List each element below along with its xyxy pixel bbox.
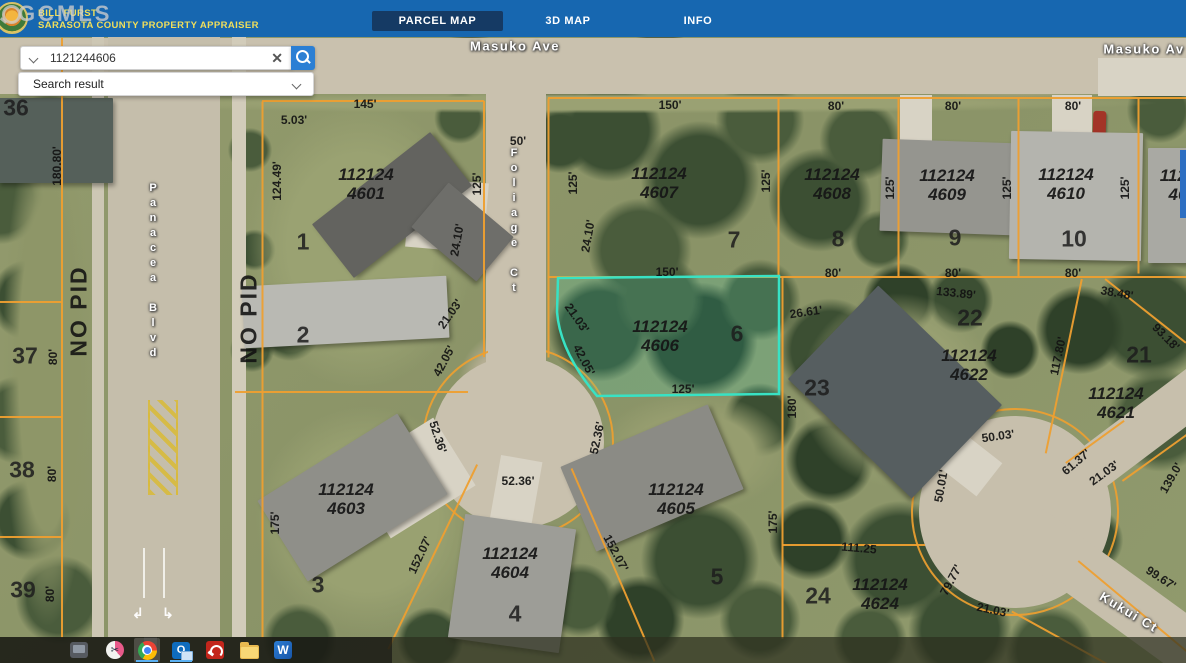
lot-number: 6 (731, 321, 744, 348)
parcel-id-label-highlighted: 1121244606 (632, 317, 687, 355)
parcel-boundary-line (547, 98, 549, 357)
map-edge-artifact (1180, 150, 1186, 218)
parcel-id-label: 1121244604 (482, 544, 537, 582)
search-result-dropdown[interactable]: Search result (18, 72, 314, 96)
search-button[interactable] (291, 46, 315, 70)
parcel-boundary-line (897, 98, 899, 277)
parcel-boundary-line (548, 276, 1186, 278)
dimension-label: 150' (656, 265, 679, 279)
county-seal-logo (0, 2, 28, 34)
outlook-icon[interactable]: O (168, 638, 194, 662)
snipping-tool-icon[interactable]: ✂ (102, 638, 128, 662)
dimension-label: 125' (759, 170, 773, 193)
dimension-label: 145' (354, 97, 377, 111)
parcel-boundary-line (61, 38, 63, 638)
parcel-id-label: 1121244624 (852, 575, 907, 613)
dimension-label: 125' (566, 172, 580, 195)
parcel-boundary-line (1017, 98, 1019, 277)
street-label: Foliage Ct (508, 147, 520, 297)
dimension-label: 150' (659, 98, 682, 112)
agency-subtitle: SARASOTA COUNTY PROPERTY APPRAISER (38, 20, 259, 31)
lot-number: 36 (3, 95, 29, 122)
clear-search-icon[interactable]: ✕ (263, 50, 291, 67)
parcel-id-label: 1121244607 (631, 164, 686, 202)
active-app-indicator (136, 660, 158, 662)
dimension-label: 80' (46, 349, 60, 365)
dimension-label: 80' (1065, 266, 1081, 280)
parcel-id-label: 1121244608 (804, 165, 859, 203)
parcel-id-label: 1121244622 (941, 346, 996, 384)
agency-name: BILL FURST (38, 8, 97, 19)
lot-number: 24 (805, 583, 831, 610)
chevron-down-icon[interactable] (292, 80, 301, 89)
house-roof (448, 513, 576, 652)
dimension-label: 125' (1000, 177, 1014, 200)
lot-number: 23 (804, 375, 830, 402)
parcel-boundary-line (777, 98, 779, 277)
parcel-id-label: 1121244601 (338, 165, 393, 203)
no-pid-label: NO PID (66, 265, 93, 356)
street-label: Masuko Ave (470, 39, 560, 54)
tab-3d-map[interactable]: 3D MAP (503, 11, 633, 31)
lot-number: 1 (297, 229, 310, 256)
dimension-label: 125' (470, 173, 484, 196)
tab-parcel-map[interactable]: PARCEL MAP (372, 11, 503, 31)
parcel-id-label: 1121244603 (318, 480, 373, 518)
chevron-down-icon[interactable] (29, 54, 38, 63)
dimension-label: 175' (268, 512, 282, 535)
dimension-label: 80' (825, 266, 841, 280)
driveway (1098, 58, 1186, 96)
parcel-boundary-line (0, 416, 62, 418)
no-pid-label: NO PID (236, 272, 263, 363)
parcel-map-canvas[interactable]: ↲↳Masuko AveMasuko AvPanacea BlvdFoliage… (0, 37, 1186, 663)
parcel-boundary-line (548, 97, 1186, 99)
parcel-id-label: 1121244621 (1088, 384, 1143, 422)
house-roof (241, 276, 449, 349)
parcel-search-bar[interactable]: ✕ (20, 46, 292, 70)
app-header: BILL FURST SARASOTA COUNTY PROPERTY APPR… (0, 0, 1186, 37)
lot-number: 3 (312, 572, 325, 599)
street-label: Panacea Blvd (147, 182, 159, 362)
parcel-boundary-line (483, 101, 485, 357)
lot-number: 9 (949, 225, 962, 252)
lot-number: 2 (297, 322, 310, 349)
dimension-label: 125' (1118, 177, 1132, 200)
dimension-label: 125' (883, 177, 897, 200)
dimension-label: 50' (510, 134, 526, 148)
parcel-boundary-line (0, 301, 62, 303)
parcel-boundary-line (0, 536, 62, 538)
lot-number: 38 (9, 457, 35, 484)
dimension-label: 80' (43, 586, 57, 602)
dimension-label: 175' (766, 511, 780, 534)
pavement-arrow-right: ↳ (162, 605, 174, 622)
dimension-label: 180.80' (50, 146, 64, 186)
search-input[interactable] (48, 50, 263, 66)
lot-number: 5 (711, 564, 724, 591)
lot-number: 37 (12, 343, 38, 370)
parcel-id-label: 1121244605 (648, 480, 703, 518)
lot-number: 22 (957, 305, 983, 332)
file-explorer-icon[interactable] (236, 638, 262, 662)
dimension-label: 125' (672, 382, 695, 396)
dimension-label: 52.36' (502, 474, 535, 488)
lane-line (163, 548, 165, 598)
lot-number: 7 (728, 227, 741, 254)
search-result-label: Search result (19, 77, 292, 91)
system-app-icon[interactable] (66, 638, 92, 662)
parcel-id-label: 1121244610 (1038, 165, 1093, 203)
parcel-boundary-line (1137, 98, 1139, 273)
dimension-label: 180' (785, 396, 799, 419)
pavement-arrow-left: ↲ (132, 605, 144, 622)
parcel-boundary-line (781, 277, 783, 638)
dimension-label: 80' (1065, 99, 1081, 113)
lot-number: 39 (10, 577, 36, 604)
lot-number: 10 (1061, 226, 1087, 253)
dimension-label: 80' (828, 99, 844, 113)
dimension-label: 80' (945, 266, 961, 280)
dimension-label: 111.25 (841, 539, 877, 556)
dimension-label: 5.03' (281, 113, 307, 127)
dimension-label: 80' (945, 99, 961, 113)
parcel-boundary-line (235, 391, 468, 393)
lot-number: 8 (832, 226, 845, 253)
tab-info[interactable]: INFO (633, 11, 763, 31)
lot-number: 4 (509, 601, 522, 628)
parcel-boundary-line (261, 101, 263, 638)
windows-taskbar[interactable]: ✂OW (0, 637, 1186, 663)
road-panacea-blvd (108, 37, 220, 637)
parcel-id-label: 1121244609 (919, 166, 974, 204)
active-app-indicator (170, 660, 192, 662)
word-icon[interactable]: W (270, 638, 296, 662)
dimension-label: 124.49' (270, 161, 284, 201)
chrome-icon[interactable] (134, 638, 160, 662)
lane-line (143, 548, 145, 598)
acrobat-icon[interactable] (202, 638, 228, 662)
lane-median-hatch (148, 400, 178, 495)
road-foliage-ct (488, 336, 546, 362)
dimension-label: 80' (45, 466, 59, 482)
lot-number: 21 (1126, 342, 1152, 369)
street-label: Masuko Av (1103, 42, 1184, 57)
